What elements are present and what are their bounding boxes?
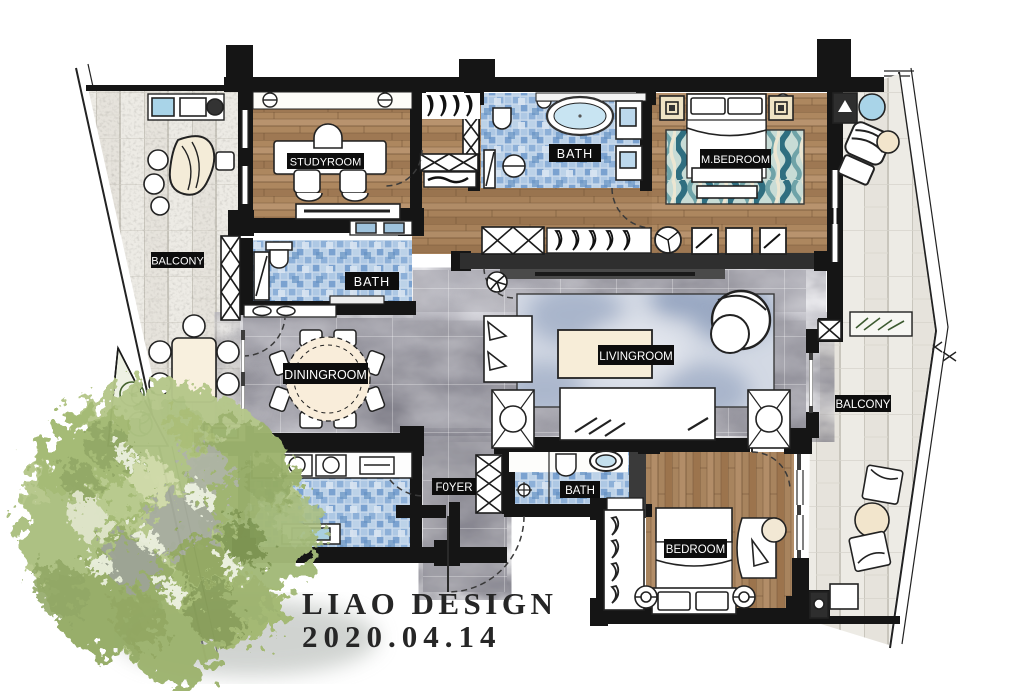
svg-text:BALCONY: BALCONY <box>836 399 891 411</box>
svg-text:LIAO DESIGN: LIAO DESIGN <box>302 586 557 621</box>
svg-text:LIVINGROOM: LIVINGROOM <box>599 351 672 363</box>
svg-text:2020.04.14: 2020.04.14 <box>302 619 502 654</box>
svg-text:BEDROOM: BEDROOM <box>666 544 725 556</box>
svg-text:DININGROOM: DININGROOM <box>284 368 367 382</box>
svg-text:BATH: BATH <box>354 275 390 289</box>
svg-text:BATH: BATH <box>565 485 595 497</box>
svg-text:BATH: BATH <box>557 147 593 161</box>
svg-text:BALCONY: BALCONY <box>151 256 204 268</box>
svg-text:M.BEDROOM: M.BEDROOM <box>701 154 770 166</box>
svg-text:STUDYROOM: STUDYROOM <box>290 157 362 169</box>
svg-text:F0YER: F0YER <box>435 482 472 494</box>
